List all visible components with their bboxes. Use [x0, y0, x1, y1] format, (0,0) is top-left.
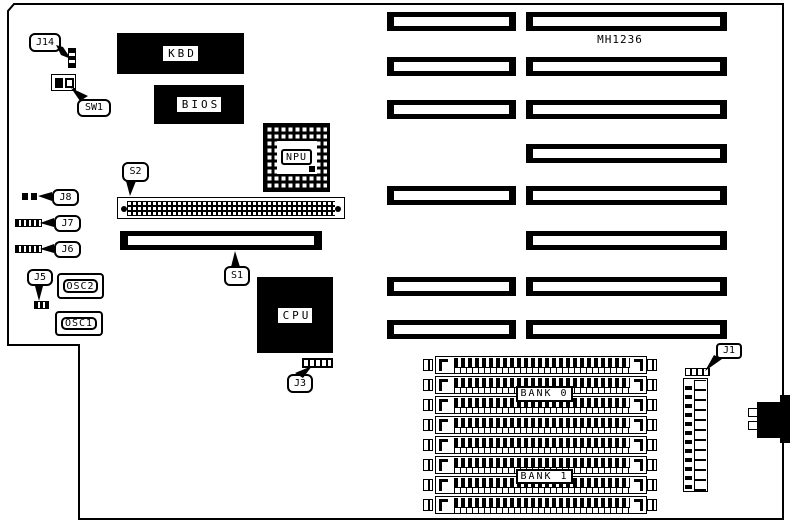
expansion-slot-right	[526, 231, 727, 250]
board-outline	[0, 0, 792, 527]
j1-label: J1	[723, 346, 735, 356]
simm-hook-left	[439, 479, 448, 491]
expansion-slot-left	[387, 12, 516, 31]
simm-hook-right	[634, 379, 643, 391]
simm-pin-cells	[454, 487, 630, 493]
j7-connector	[15, 219, 42, 227]
simm-hook-left	[439, 359, 448, 371]
simm-pin-bars	[454, 498, 630, 507]
j14-callout: J14	[29, 33, 61, 52]
simm-clip-right	[647, 479, 657, 491]
board-model: MH1236	[565, 33, 675, 46]
j8-connector	[22, 193, 39, 200]
simm-clip-left	[423, 479, 433, 491]
expansion-slot-left	[387, 100, 516, 119]
j5-connector	[34, 301, 49, 309]
simm-hook-left	[439, 399, 448, 411]
simm-pin-cells	[454, 447, 630, 453]
j1-connector	[683, 378, 708, 492]
s2-tail	[126, 181, 136, 196]
expansion-slot-right	[526, 186, 727, 205]
j8-callout: J8	[52, 189, 79, 206]
simm-hook-right	[634, 479, 643, 491]
j5-label: J5	[34, 273, 46, 283]
s2-pin-field	[127, 201, 335, 216]
bios-label: BIOS	[177, 97, 222, 112]
simm-clip-right	[647, 459, 657, 471]
j6-callout: J6	[54, 241, 81, 258]
j1-connector-pins	[685, 381, 692, 489]
bank1-text: BANK 1	[520, 472, 568, 482]
bios-chip: BIOS	[154, 85, 244, 124]
sw1-switch-tick	[73, 88, 76, 91]
s2-callout: S2	[122, 162, 149, 182]
expansion-slot-right	[526, 100, 727, 119]
simm-socket	[423, 436, 657, 454]
j8-label: J8	[59, 193, 71, 203]
j14-connector	[68, 48, 76, 68]
osc1-labelbox: OSC1	[61, 317, 97, 330]
j5-tail	[35, 286, 43, 301]
expansion-slot-right	[526, 57, 727, 76]
expansion-slot-left	[387, 186, 516, 205]
simm-hook-right	[634, 419, 643, 431]
osc2-label: OSC2	[66, 281, 94, 292]
callout-tails	[0, 0, 792, 527]
j3-connector	[302, 358, 333, 368]
s2-mount-hole-right	[335, 206, 341, 212]
simm-clip-right	[647, 399, 657, 411]
s1-label: S1	[231, 271, 243, 281]
simm-pin-cells	[454, 427, 630, 433]
npu-pin1-dot	[309, 166, 315, 172]
expansion-slot-left	[387, 277, 516, 296]
npu-label: NPU	[286, 152, 307, 163]
sw1-switch-off-block	[65, 78, 74, 88]
s2-label: S2	[129, 167, 141, 177]
simm-hook-right	[634, 459, 643, 471]
expansion-slot-left	[387, 320, 516, 339]
j6-label: J6	[61, 245, 73, 255]
expansion-slot-right	[526, 144, 727, 163]
simm-body	[435, 356, 647, 374]
simm-clip-right	[647, 359, 657, 371]
j1-pin-header	[685, 368, 710, 376]
expansion-slot-right	[526, 320, 727, 339]
simm-body	[435, 496, 647, 514]
simm-socket	[423, 356, 657, 374]
sw1-callout: SW1	[77, 99, 111, 117]
simm-hook-right	[634, 399, 643, 411]
s1-tail	[231, 251, 240, 267]
bank0-text: BANK 0	[520, 389, 568, 399]
s1-slot	[120, 231, 322, 250]
expansion-slot-right	[526, 12, 727, 31]
external-port-pin-upper	[748, 408, 758, 417]
j14-label: J14	[36, 38, 54, 48]
j3-label: J3	[294, 379, 306, 389]
simm-clip-left	[423, 499, 433, 511]
simm-clip-right	[647, 379, 657, 391]
simm-hook-right	[634, 499, 643, 511]
expansion-slot-left	[387, 57, 516, 76]
external-port-body	[757, 402, 781, 438]
simm-clip-left	[423, 399, 433, 411]
simm-clip-left	[423, 439, 433, 451]
osc1-oscillator: OSC1	[55, 311, 103, 336]
kbd-label: KBD	[163, 46, 198, 61]
simm-hook-right	[634, 439, 643, 451]
simm-hook-left	[439, 379, 448, 391]
j6-tail	[40, 244, 54, 253]
osc2-oscillator: OSC2	[57, 273, 104, 299]
simm-body	[435, 416, 647, 434]
cpu-chip: CPU	[257, 277, 333, 353]
cpu-label: CPU	[278, 308, 313, 323]
simm-hook-left	[439, 499, 448, 511]
simm-body	[435, 436, 647, 454]
simm-hook-left	[439, 459, 448, 471]
bank1-label: BANK 1	[516, 469, 573, 484]
simm-socket	[423, 416, 657, 434]
simm-clip-right	[647, 439, 657, 451]
s1-slot-inner	[128, 236, 314, 245]
j5-callout: J5	[27, 269, 53, 286]
simm-hook-right	[634, 359, 643, 371]
osc2-labelbox: OSC2	[63, 279, 98, 293]
j6-connector	[15, 245, 42, 253]
sw1-switch-on-block	[55, 78, 63, 88]
simm-pin-cells	[454, 407, 630, 413]
sw1-label: SW1	[85, 103, 103, 113]
npu-socket: NPU	[263, 123, 330, 192]
simm-hook-left	[439, 419, 448, 431]
npu-labelbox: NPU	[281, 149, 312, 165]
j1-callout: J1	[716, 343, 742, 359]
j7-callout: J7	[54, 215, 81, 232]
npu-center-area: NPU	[277, 141, 317, 174]
simm-socket	[423, 496, 657, 514]
external-port-tab	[780, 395, 790, 443]
osc1-label: OSC1	[65, 318, 93, 329]
simm-clip-left	[423, 419, 433, 431]
s1-callout: S1	[224, 266, 250, 286]
j7-tail	[40, 218, 54, 227]
j1-connector-cells	[694, 380, 706, 491]
j7-label: J7	[61, 219, 73, 229]
simm-hook-left	[439, 439, 448, 451]
kbd-chip: KBD	[117, 33, 244, 74]
j8-tail	[38, 192, 52, 201]
simm-clip-right	[647, 499, 657, 511]
simm-pin-cells	[454, 367, 630, 373]
simm-clip-left	[423, 359, 433, 371]
s2-connector	[117, 197, 345, 219]
external-port-pin-lower	[748, 421, 758, 430]
j3-callout: J3	[287, 374, 313, 393]
expansion-slot-right	[526, 277, 727, 296]
simm-clip-left	[423, 459, 433, 471]
sw1-switch	[51, 74, 76, 91]
motherboard-diagram: J14 SW1 KBD BIOS NPU S2 S1	[0, 0, 792, 527]
simm-pin-bars	[454, 418, 630, 427]
simm-clip-left	[423, 379, 433, 391]
simm-pin-bars	[454, 358, 630, 367]
simm-pin-bars	[454, 438, 630, 447]
simm-pin-bars	[454, 458, 630, 467]
simm-pin-cells	[454, 507, 630, 513]
simm-clip-right	[647, 419, 657, 431]
bank0-label: BANK 0	[516, 386, 573, 402]
